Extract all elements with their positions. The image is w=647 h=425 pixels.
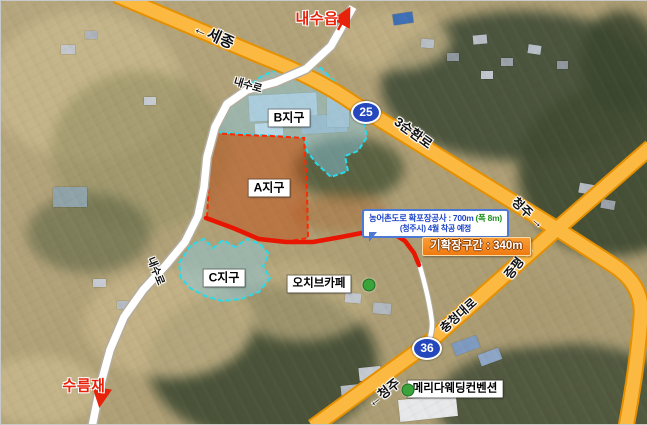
- zone-a-label: A지구: [249, 180, 290, 197]
- construction-callout-width: (폭 8m): [476, 213, 502, 223]
- route-25-badge: 25: [351, 101, 381, 124]
- poi-dot-merida-wedding: [402, 384, 415, 397]
- construction-callout-main: 농어촌도로 확포장공사 : 700m: [369, 213, 473, 223]
- route-36-badge: 36: [412, 337, 442, 360]
- construction-callout-sub: (청주시) 4월 착공 예정: [369, 224, 502, 234]
- map-overlay-svg: [1, 1, 647, 424]
- widened-section-box: 기확장구간 : 340m: [422, 237, 531, 256]
- poi-label-ochiv-cafe: 오치브카페: [288, 276, 351, 293]
- zone-c-label: C지구: [204, 270, 245, 287]
- zone-b-label: B지구: [269, 110, 310, 127]
- construction-callout-box: 농어촌도로 확포장공사 : 700m (폭 8m) (청주시) 4월 착공 예정: [362, 209, 509, 238]
- poi-dot-ochiv-cafe: [363, 279, 376, 292]
- city-label-sureumjae: 수름재: [63, 375, 106, 396]
- poi-label-merida-wedding: 메리다웨딩컨벤션: [408, 381, 503, 398]
- city-label-naesu-eup: 내수읍: [296, 8, 339, 29]
- construction-callout-pointer: [369, 232, 377, 242]
- satellite-map: ←세종 내수로 3순환로 청주 → 증평 → 충청대로 ←청주 내수로 내수읍 …: [0, 0, 647, 425]
